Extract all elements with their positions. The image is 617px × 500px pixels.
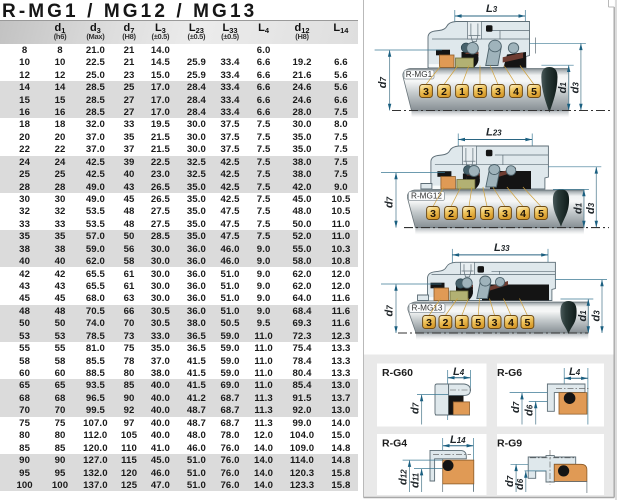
svg-text:5: 5 bbox=[538, 208, 544, 220]
svg-text:d7: d7 bbox=[384, 196, 396, 208]
svg-text:3: 3 bbox=[492, 317, 498, 329]
svg-text:1: 1 bbox=[459, 317, 465, 329]
svg-text:4: 4 bbox=[508, 317, 514, 329]
svg-text:d7: d7 bbox=[377, 77, 389, 89]
svg-text:L14: L14 bbox=[450, 434, 466, 446]
svg-text:R-G60: R-G60 bbox=[382, 367, 413, 379]
svg-text:3: 3 bbox=[426, 317, 432, 329]
svg-text:2: 2 bbox=[448, 208, 454, 220]
svg-text:d1: d1 bbox=[557, 82, 569, 94]
svg-text:d12: d12 bbox=[398, 469, 410, 485]
svg-text:3: 3 bbox=[423, 86, 429, 98]
svg-text:d3: d3 bbox=[569, 82, 581, 94]
svg-text:d6: d6 bbox=[514, 478, 526, 490]
svg-text:L4: L4 bbox=[453, 366, 465, 378]
svg-text:R-MG12: R-MG12 bbox=[411, 192, 442, 201]
svg-text:R-G4: R-G4 bbox=[382, 438, 407, 450]
svg-text:R-MG1: R-MG1 bbox=[406, 70, 433, 79]
svg-text:5: 5 bbox=[524, 317, 530, 329]
svg-text:5: 5 bbox=[477, 86, 483, 98]
svg-text:3: 3 bbox=[495, 86, 501, 98]
svg-text:d1: d1 bbox=[577, 310, 589, 322]
svg-text:d7: d7 bbox=[510, 401, 522, 413]
svg-text:1: 1 bbox=[459, 86, 465, 98]
svg-text:L3: L3 bbox=[486, 3, 498, 15]
svg-text:L33: L33 bbox=[494, 242, 510, 254]
svg-text:5: 5 bbox=[531, 86, 537, 98]
svg-text:3: 3 bbox=[502, 208, 508, 220]
svg-text:R-G9: R-G9 bbox=[497, 438, 522, 450]
svg-text:L4: L4 bbox=[569, 366, 581, 378]
svg-text:5: 5 bbox=[484, 208, 490, 220]
svg-text:1: 1 bbox=[466, 208, 472, 220]
svg-text:2: 2 bbox=[442, 317, 448, 329]
svg-text:d11: d11 bbox=[410, 472, 422, 488]
svg-text:d3: d3 bbox=[591, 310, 603, 322]
svg-text:R-G6: R-G6 bbox=[497, 367, 522, 379]
svg-text:L23: L23 bbox=[486, 127, 502, 139]
svg-text:d1: d1 bbox=[572, 202, 584, 214]
svg-text:d7: d7 bbox=[410, 402, 422, 414]
svg-text:R-MG13: R-MG13 bbox=[412, 304, 443, 313]
svg-text:3: 3 bbox=[430, 208, 436, 220]
svg-text:4: 4 bbox=[513, 86, 519, 98]
svg-text:4: 4 bbox=[520, 208, 526, 220]
svg-text:d6: d6 bbox=[524, 404, 536, 416]
svg-text:d7: d7 bbox=[384, 305, 396, 317]
svg-text:2: 2 bbox=[441, 86, 447, 98]
svg-text:5: 5 bbox=[475, 317, 481, 329]
svg-text:d3: d3 bbox=[585, 202, 597, 214]
